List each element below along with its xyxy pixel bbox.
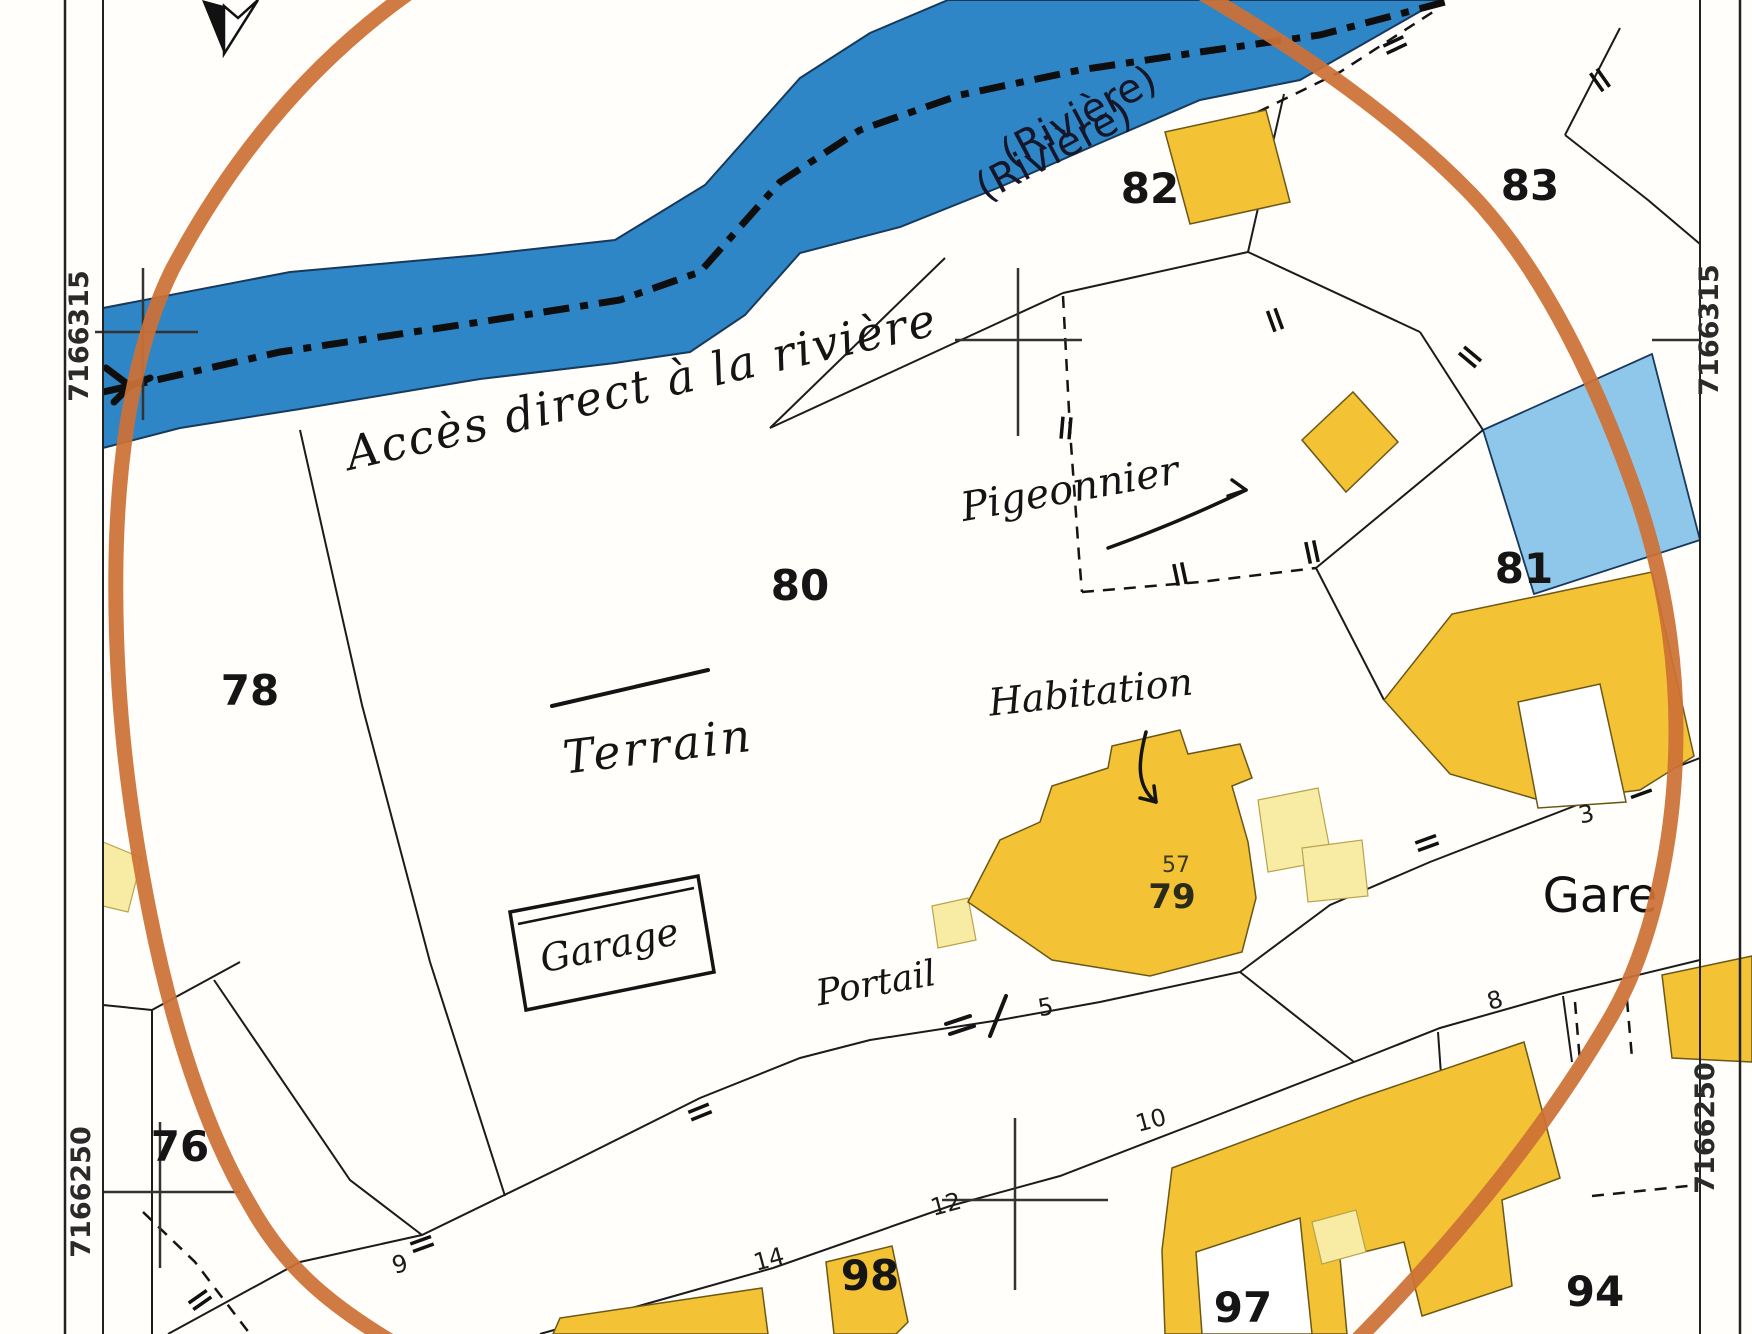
tick-mark [1415,835,1438,850]
tick-mark [1459,347,1481,367]
boundary-82-c [1063,252,1248,293]
parcel-81-label: 81 [1495,544,1553,593]
building-bottom-strip [553,1288,768,1334]
road-number-14: 14 [751,1242,788,1277]
handwriting-garage: Garage [536,909,683,981]
road-number-9: 9 [389,1249,411,1280]
handwriting-pigeonnier: Pigeonnier [956,447,1185,531]
boundary-78-80 [300,430,505,1196]
parcel-94-label: 94 [1566,1267,1624,1316]
building-parcel-79-house [968,730,1256,976]
coordinate-label-bottom-right: 7166250 [1690,1062,1721,1194]
portail-gate-marks [946,996,1006,1036]
road-number-12: 12 [928,1187,965,1222]
tick-mark [1383,37,1406,54]
gare-label: Gare [1543,868,1658,924]
dashed-boundary-94-c [1627,1000,1632,1058]
parcel-98-label: 98 [841,1251,899,1300]
parcel-97-label: 97 [1214,1283,1272,1332]
boundary-topright-a [1565,28,1620,135]
parcel-79-label: 79 [1148,877,1195,917]
house-number-57: 57 [1162,853,1190,878]
parcel-76-label: 76 [151,1122,209,1171]
boundary-81-left [1316,568,1384,700]
boundary-94-top [1563,996,1572,1062]
building-79-annex-small [932,898,976,948]
road-number-5: 5 [1036,992,1056,1022]
tick-mark [189,1290,212,1309]
road-number-10: 10 [1133,1103,1170,1138]
tick-mark [1174,562,1186,585]
grid-cross-bottom-middle [942,1118,1108,1290]
boundary-76-d [103,1005,152,1010]
handwriting-portail: Portail [812,953,939,1014]
north-arrow-icon [202,0,258,54]
tick-mark [688,1104,711,1120]
coordinate-label-top-left: 7166315 [64,270,95,402]
parcel-78-label: 78 [221,666,279,715]
dashed-boundary-80-horizontal [1082,568,1316,592]
dashed-boundary-94-a [1592,1186,1688,1196]
coordinate-label-top-right: 7166315 [1694,264,1725,396]
boundary-97-gare [1240,972,1354,1062]
tick-mark [1590,69,1609,92]
terrain-overline [552,670,708,706]
parcel-83-label: 83 [1501,161,1559,210]
boundary-83-b [1420,332,1483,430]
building-pigeonnier [1302,392,1398,492]
dashed-boundary-94-b [1575,1002,1580,1062]
handwriting-terrain: Terrain [560,708,756,785]
parcel-80-label: 80 [771,561,829,610]
coordinate-label-bottom-left: 7166250 [66,1126,97,1258]
boundary-83-a [1248,252,1420,332]
boundary-topright-b [1565,135,1700,244]
cadastral-map-scan: (Rivière) (Rivière) 82 83 80 81 78 76 97… [0,0,1752,1334]
building-right-edge [1662,956,1752,1062]
handwriting-habitation: Habitation [985,659,1194,724]
tick-mark [410,1236,433,1251]
road-number-8: 8 [1484,985,1506,1016]
tick-mark [1267,308,1282,331]
building-pale-near-gare [1302,840,1368,902]
building-parcel-82 [1165,110,1290,224]
tick-mark [1061,417,1071,440]
parcel-82-label: 82 [1121,164,1179,213]
tick-mark [1306,540,1318,563]
